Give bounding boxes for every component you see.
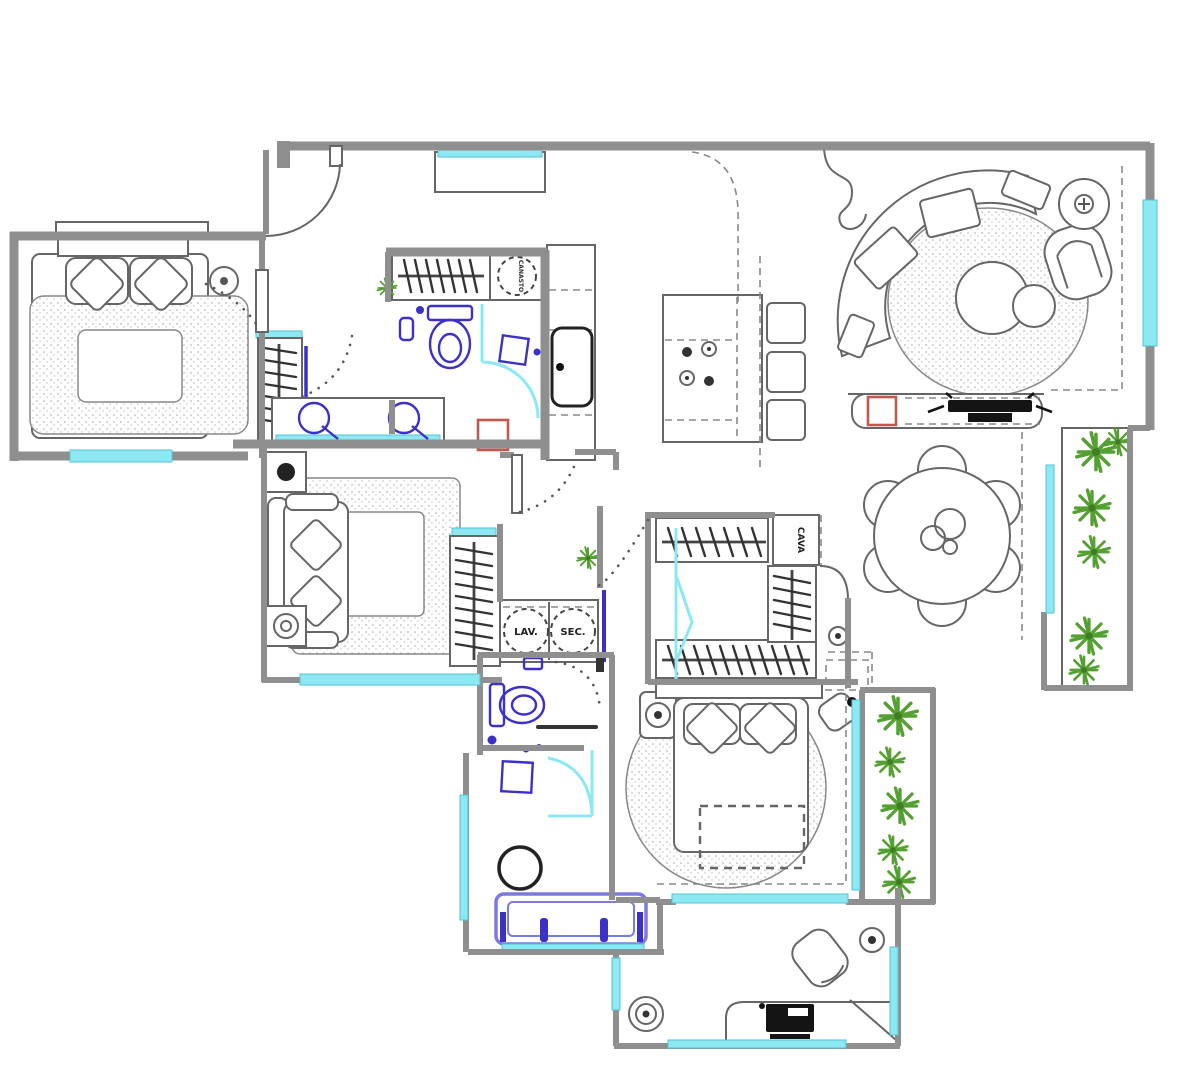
tub-fitting xyxy=(500,912,506,942)
keyboard xyxy=(770,1034,810,1039)
drain-dot xyxy=(416,306,424,314)
sink-faucet-dot xyxy=(556,363,564,371)
plant-icon xyxy=(879,836,908,865)
door-leaf-master xyxy=(256,270,268,332)
wardrobe-glass xyxy=(452,528,496,536)
door-leaf-hall xyxy=(512,455,522,513)
bar-stool xyxy=(767,303,805,343)
burner xyxy=(704,376,714,386)
burner xyxy=(682,347,692,357)
walk-in-closet: CAVA xyxy=(656,515,872,688)
shower-door-arc xyxy=(548,758,592,812)
basket-label: CANASTO xyxy=(517,260,524,292)
shower-door-arc xyxy=(482,362,538,418)
balcony-planter-right xyxy=(1062,428,1131,686)
speaker-box xyxy=(266,606,306,646)
stool xyxy=(499,847,541,889)
toilet xyxy=(500,687,544,723)
speaker-dot xyxy=(868,936,876,944)
swing-hall xyxy=(520,462,576,512)
shower-drain xyxy=(501,761,533,793)
pivot-dot xyxy=(835,633,841,639)
entry-door-arc xyxy=(266,164,340,236)
laundry-basket xyxy=(498,257,536,295)
plant-icon xyxy=(577,547,599,569)
window-bedroom3-side xyxy=(852,700,860,890)
dining-room xyxy=(864,432,1022,640)
toilet-tank xyxy=(428,306,472,320)
floor-plan-canvas: CANASTO xyxy=(0,0,1200,1072)
lamp-dot xyxy=(220,277,228,285)
master-bedroom xyxy=(30,222,248,438)
balcony-planter-bottom xyxy=(862,690,933,904)
toilet-bowl xyxy=(512,696,536,715)
headboard xyxy=(656,684,822,698)
lamp-dot xyxy=(654,711,662,719)
toilet-bowl xyxy=(439,334,461,362)
computer-screen xyxy=(788,1008,808,1016)
plant-icon xyxy=(879,697,917,735)
wall-niche xyxy=(435,152,545,192)
cabinet-dot xyxy=(277,463,295,481)
window-office-right xyxy=(890,947,898,1035)
bathroom-1 xyxy=(272,304,541,450)
tub-faucet xyxy=(540,918,548,942)
desk-chair xyxy=(787,924,854,992)
floor-plan-drawing: CANASTO xyxy=(0,0,1200,1072)
wardrobe-2 xyxy=(450,528,500,666)
toilet-tank xyxy=(490,684,504,726)
burner-dot xyxy=(685,376,689,380)
swing-bedroom3 xyxy=(598,520,648,586)
burner-dot xyxy=(707,347,711,351)
dryer-label: SEC. xyxy=(560,627,585,638)
plant-icon xyxy=(882,788,918,824)
curved-wall-scroll xyxy=(824,148,866,229)
mouse xyxy=(759,1003,765,1009)
shower-drain xyxy=(499,335,528,364)
tub-fitting xyxy=(637,912,643,942)
cava-label: CAVA xyxy=(795,527,805,553)
wall-office xyxy=(614,888,900,1046)
bathtub-inner xyxy=(508,902,634,936)
window-tubroom xyxy=(460,795,468,920)
window-bedroom3-bottom xyxy=(672,894,848,903)
washer-label: LAV. xyxy=(514,627,538,638)
speaker-dot xyxy=(643,1011,650,1018)
window-dining xyxy=(1046,465,1054,613)
bedroom-2 xyxy=(266,452,460,654)
bar-stool xyxy=(767,352,805,392)
corner-glass xyxy=(850,1000,896,1040)
plant-icon xyxy=(1071,618,1107,654)
window-bedroom2 xyxy=(300,674,480,685)
laundry-closet: LAV. SEC. xyxy=(500,547,604,662)
bathroom-2 xyxy=(488,656,605,816)
door-leaf-entry xyxy=(330,146,342,166)
window-living xyxy=(1143,200,1157,346)
ceiling-arch-dash xyxy=(692,152,738,302)
office xyxy=(629,924,898,1046)
window-master xyxy=(70,450,172,462)
toilet-brush xyxy=(400,318,413,340)
drain-dot xyxy=(488,736,497,745)
plant-icon xyxy=(1078,536,1109,567)
sofa-armrest xyxy=(286,494,338,510)
plant-icon xyxy=(1077,433,1115,471)
window-office-bottom xyxy=(668,1040,846,1048)
side-table xyxy=(1013,285,1055,327)
shower-head xyxy=(534,349,541,356)
door-swing xyxy=(556,662,600,708)
console-red-box xyxy=(868,397,896,425)
plant-icon xyxy=(1074,490,1110,526)
door-leaf xyxy=(596,656,604,672)
rounded-wall xyxy=(820,566,848,600)
tub-faucet xyxy=(600,918,608,942)
bar-stool xyxy=(767,400,805,440)
plant-icon xyxy=(1070,656,1099,685)
plant-icon xyxy=(876,748,905,777)
window-office-left xyxy=(612,958,620,1010)
